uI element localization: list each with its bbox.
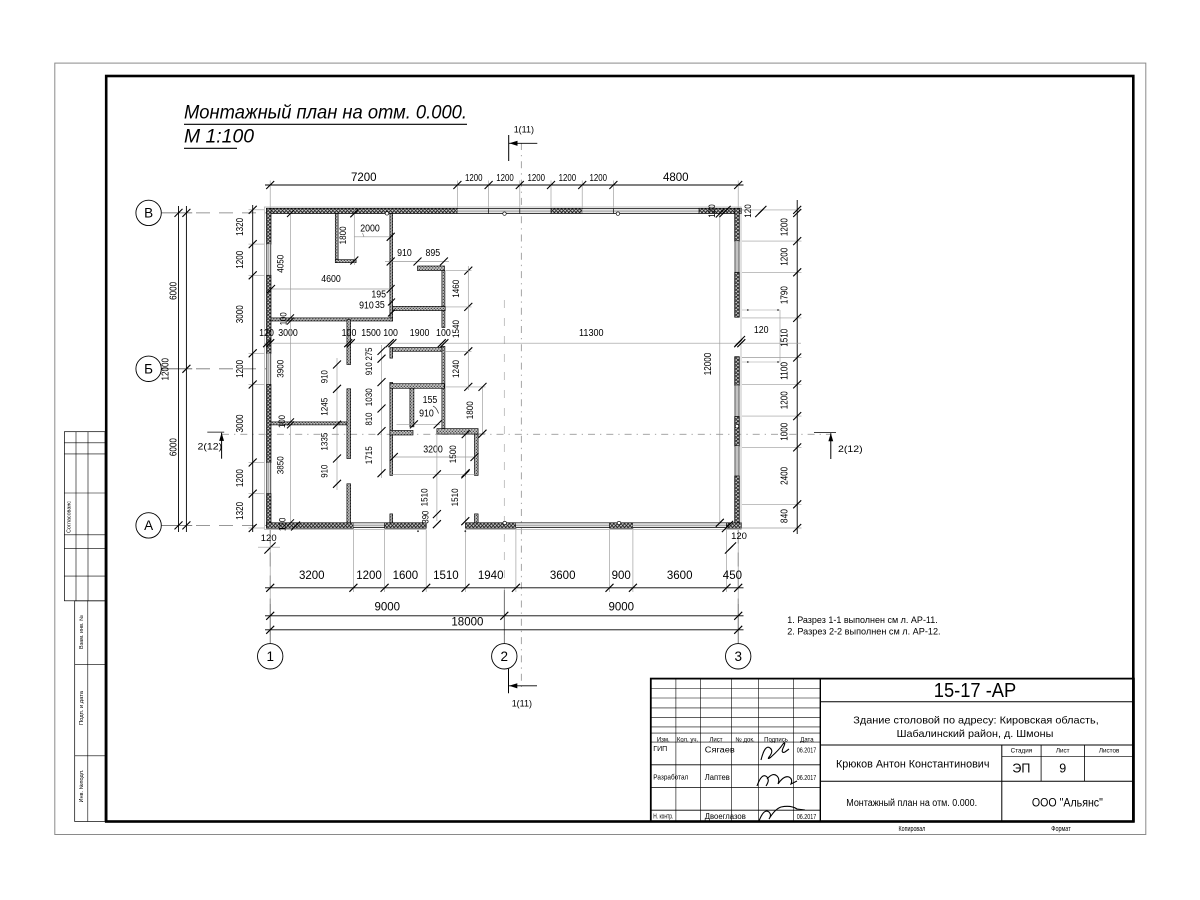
svg-text:1. Разрез 1-1 выполнен см л. А: 1. Разрез 1-1 выполнен см л. АР-11. [787,615,938,626]
svg-text:1600: 1600 [393,570,419,582]
svg-text:910: 910 [419,409,434,420]
svg-text:1200: 1200 [496,173,514,184]
svg-text:275: 275 [364,348,375,361]
svg-text:120: 120 [261,533,277,544]
svg-text:120: 120 [754,325,769,336]
svg-text:Здание столовой по адресу: Кир: Здание столовой по адресу: Кировская обл… [853,715,1099,727]
svg-text:9000: 9000 [375,602,401,614]
svg-text:12000: 12000 [160,358,171,381]
svg-text:2(12): 2(12) [198,441,223,452]
svg-text:А: А [144,518,153,533]
svg-text:Дата: Дата [800,737,814,743]
svg-text:1000: 1000 [780,422,791,440]
svg-text:1320: 1320 [235,218,246,236]
svg-text:1200: 1200 [780,247,791,265]
svg-text:910: 910 [359,301,374,312]
svg-text:2: 2 [501,649,509,664]
svg-text:3000: 3000 [235,305,246,323]
svg-text:1900: 1900 [410,328,430,339]
svg-text:6000: 6000 [168,438,179,456]
svg-text:Согласованс: Согласованс [67,501,73,533]
svg-text:1540: 1540 [451,320,462,338]
svg-text:1200: 1200 [589,173,607,184]
svg-text:100: 100 [383,328,398,339]
svg-text:12000: 12000 [703,352,714,375]
svg-text:1500: 1500 [448,445,459,463]
svg-text:910: 910 [319,465,330,478]
svg-text:195: 195 [371,290,386,301]
svg-text:Копировал: Копировал [899,826,926,833]
svg-text:Взам. инв. №: Взам. инв. № [79,615,85,649]
svg-text:4050: 4050 [276,255,287,273]
svg-text:1200: 1200 [235,469,246,487]
svg-text:1940: 1940 [478,570,504,582]
svg-text:9000: 9000 [609,602,635,614]
svg-text:ГИП: ГИП [653,746,667,753]
svg-text:1200: 1200 [527,173,545,184]
svg-text:100: 100 [436,328,451,339]
svg-text:1800: 1800 [465,401,476,419]
svg-text:06.2017: 06.2017 [797,812,816,821]
svg-text:1510: 1510 [433,570,459,582]
svg-text:06.2017: 06.2017 [797,773,816,782]
svg-text:Сягаев: Сягаев [705,746,735,755]
svg-text:Формат: Формат [1051,826,1071,833]
svg-text:3000: 3000 [235,414,246,432]
svg-text:1790: 1790 [780,286,791,304]
svg-text:2000: 2000 [360,224,380,235]
svg-text:1030: 1030 [364,388,375,406]
svg-text:9: 9 [1059,761,1066,775]
svg-text:1510: 1510 [780,328,791,346]
svg-text:1200: 1200 [235,250,246,268]
svg-text:Кол. уч.: Кол. уч. [677,737,699,743]
svg-text:1320: 1320 [235,502,246,520]
svg-text:Изм.: Изм. [657,737,670,743]
svg-text:7200: 7200 [351,172,377,184]
svg-text:1240: 1240 [451,360,462,378]
svg-text:М 1:100: М 1:100 [184,126,254,148]
svg-text:3600: 3600 [667,570,693,582]
svg-text:100: 100 [279,312,290,325]
svg-text:3850: 3850 [276,456,287,474]
svg-text:1500: 1500 [361,328,381,339]
svg-text:2. Разрез 2-2 выполнен см л. А: 2. Разрез 2-2 выполнен см л. АР-12. [787,627,940,638]
svg-text:Инв. №подл.: Инв. №подл. [79,770,85,803]
svg-text:15-17 -АР: 15-17 -АР [934,680,1017,702]
svg-text:910: 910 [397,248,412,259]
svg-text:1800: 1800 [338,226,349,244]
svg-text:1100: 1100 [780,362,791,380]
svg-text:1: 1 [266,649,274,664]
svg-text:В: В [144,206,153,221]
svg-text:910: 910 [364,362,375,375]
svg-text:155: 155 [423,395,438,406]
svg-text:100: 100 [277,415,288,428]
svg-text:120: 120 [731,531,747,542]
svg-text:Лаптев: Лаптев [705,773,730,782]
svg-text:1200: 1200 [235,360,246,378]
svg-text:1510: 1510 [420,488,431,506]
svg-text:ООО "Альянс": ООО "Альянс" [1032,798,1103,810]
svg-text:895: 895 [425,248,440,259]
svg-text:900: 900 [612,570,631,582]
svg-text:1510: 1510 [450,488,461,506]
svg-text:6000: 6000 [168,282,179,300]
svg-text:3600: 3600 [550,570,576,582]
svg-text:450: 450 [723,570,742,582]
svg-text:06.2017: 06.2017 [797,746,816,755]
svg-text:1335: 1335 [319,433,330,451]
svg-text:1200: 1200 [465,173,483,184]
svg-text:3: 3 [734,649,742,664]
svg-text:390: 390 [420,511,431,524]
svg-text:Подп. и дата: Подп. и дата [79,691,85,725]
svg-text:1(11): 1(11) [512,698,532,709]
svg-text:Лист: Лист [1056,747,1070,754]
svg-text:120: 120 [277,518,288,532]
svg-text:2(12): 2(12) [838,444,863,455]
svg-text:910: 910 [319,370,330,383]
svg-text:3900: 3900 [276,360,287,378]
svg-text:Крюков Антон Константинович: Крюков Антон Константинович [836,758,990,770]
svg-text:3200: 3200 [299,570,325,582]
svg-text:120: 120 [743,204,754,218]
svg-text:120: 120 [707,204,718,218]
svg-text:1200: 1200 [780,391,791,409]
svg-text:1460: 1460 [451,280,462,298]
svg-text:1200: 1200 [780,218,791,236]
svg-text:Н. контр.: Н. контр. [653,813,673,820]
svg-text:810: 810 [364,413,375,426]
svg-text:Б: Б [144,361,153,376]
svg-text:Монтажный план на отм. 0.000.: Монтажный план на отм. 0.000. [846,798,977,809]
svg-text:1200: 1200 [356,570,382,582]
svg-text:100: 100 [342,328,357,339]
svg-text:4800: 4800 [663,172,689,184]
svg-text:4600: 4600 [321,274,341,285]
svg-text:Стадия: Стадия [1011,747,1032,754]
svg-text:Лист: Лист [709,737,722,743]
svg-text:Листов: Листов [1099,747,1120,754]
svg-text:120: 120 [259,328,274,339]
svg-text:3200: 3200 [423,444,443,455]
svg-text:Монтажный план на отм. 0.000.: Монтажный план на отм. 0.000. [184,102,467,124]
svg-text:1(11): 1(11) [514,124,534,135]
svg-text:35: 35 [375,300,385,311]
svg-text:840: 840 [780,509,791,523]
svg-text:Разработал: Разработал [653,773,688,781]
svg-text:1245: 1245 [319,398,330,416]
svg-text:1715: 1715 [364,446,375,464]
svg-text:18000: 18000 [451,617,483,629]
svg-text:3000: 3000 [278,328,298,339]
svg-text:1200: 1200 [559,173,577,184]
svg-text:№ док.: № док. [735,736,755,743]
svg-text:2400: 2400 [780,467,791,485]
svg-text:Двоеглазов: Двоеглазов [705,812,746,821]
svg-text:11300: 11300 [579,328,604,339]
svg-text:Шабалинский район, д. Шмоны: Шабалинский район, д. Шмоны [897,728,1054,740]
svg-text:ЭП: ЭП [1012,761,1030,775]
